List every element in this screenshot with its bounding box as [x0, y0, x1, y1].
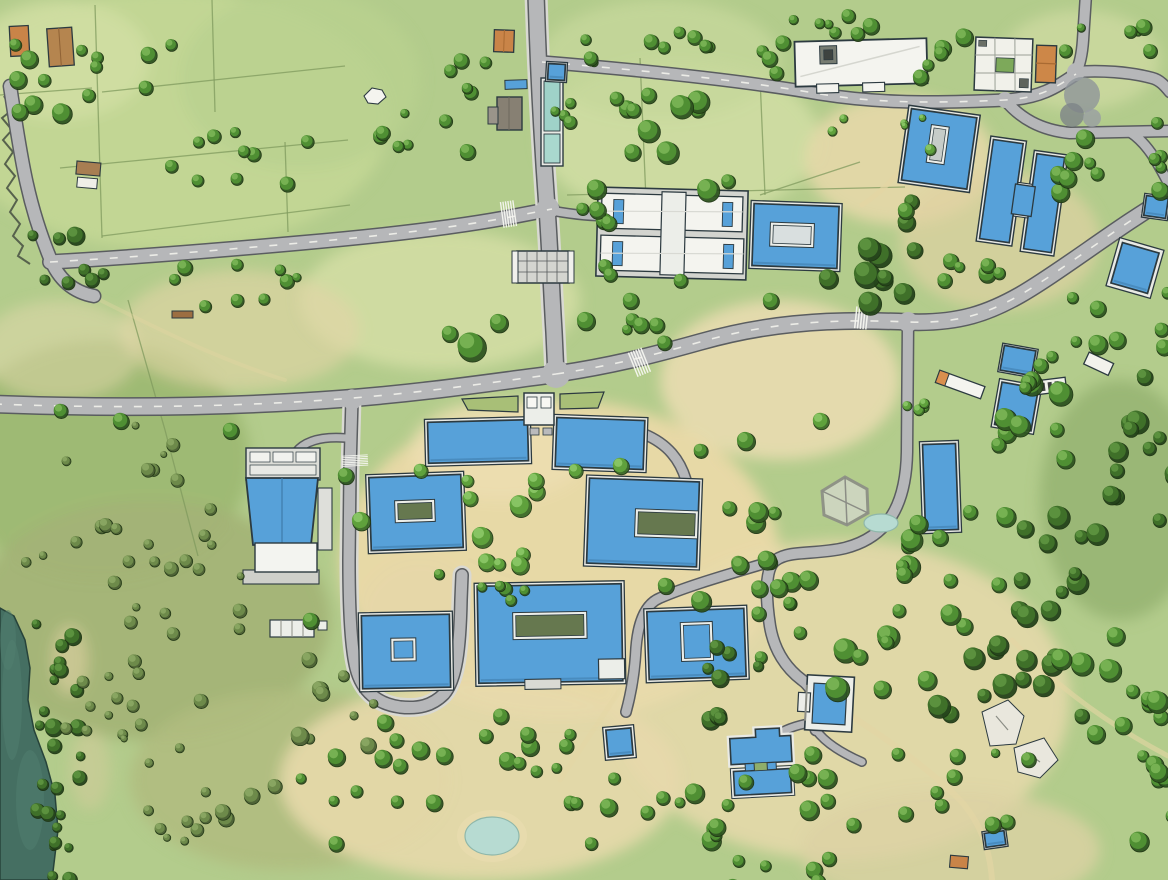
tree — [111, 692, 123, 704]
tree — [199, 529, 211, 541]
tree — [1091, 167, 1105, 181]
tree — [783, 597, 796, 611]
tree — [495, 581, 506, 592]
tree — [714, 711, 728, 725]
building-orange-house — [494, 30, 515, 53]
tree — [892, 748, 905, 762]
tree — [694, 444, 709, 459]
tree — [658, 41, 671, 54]
tree — [1077, 23, 1086, 32]
tree — [296, 773, 307, 784]
tree — [234, 623, 245, 634]
building-twin-depot — [596, 187, 748, 280]
tree — [54, 404, 69, 419]
tree — [1069, 567, 1082, 580]
building-main-hall — [583, 475, 702, 570]
tree — [201, 787, 211, 797]
tree — [585, 837, 598, 850]
tree — [674, 274, 689, 289]
tree — [165, 39, 177, 51]
tree — [81, 725, 92, 736]
tree — [1059, 44, 1073, 58]
tree — [143, 805, 153, 815]
building-road-kiosk — [545, 61, 567, 82]
tree — [1019, 382, 1032, 395]
tree — [132, 422, 139, 429]
tree — [493, 558, 506, 571]
terrain-patch — [120, 270, 360, 390]
tree — [1153, 431, 1166, 445]
tree — [155, 823, 167, 835]
tree — [1151, 117, 1163, 130]
building-lecture-hall-west — [366, 471, 467, 553]
tree — [143, 539, 153, 549]
tree — [901, 122, 908, 129]
tree — [1050, 423, 1065, 438]
tree — [56, 810, 66, 820]
tree — [434, 569, 445, 580]
tree — [231, 294, 244, 308]
tree — [292, 273, 301, 282]
tree — [52, 823, 62, 833]
tree — [231, 259, 243, 272]
tree — [702, 663, 713, 675]
tree — [160, 608, 171, 619]
tree — [163, 834, 170, 842]
tree — [477, 582, 487, 592]
tree — [192, 175, 204, 188]
building-south-edge-shed-orange — [950, 855, 969, 869]
tree — [76, 45, 87, 57]
tree — [165, 160, 178, 174]
tree — [919, 114, 926, 121]
tree — [104, 672, 113, 681]
tree — [564, 116, 578, 130]
tree — [414, 464, 429, 479]
tree — [622, 325, 632, 335]
tree — [111, 523, 122, 535]
road-junction — [537, 197, 559, 219]
building-bench — [172, 311, 193, 318]
tree — [513, 757, 526, 771]
tree — [141, 463, 155, 477]
tree — [842, 9, 856, 24]
tree — [60, 722, 72, 734]
tree — [179, 554, 192, 567]
building-gate-hall-west — [424, 417, 531, 467]
road-junction — [343, 392, 361, 410]
terrain-patch — [70, 730, 110, 810]
tree — [164, 562, 179, 577]
tree — [351, 785, 364, 798]
tree — [824, 20, 833, 29]
tree — [50, 675, 59, 684]
tree — [51, 782, 64, 795]
tree — [935, 799, 949, 814]
tree — [520, 585, 530, 595]
tree — [82, 89, 96, 103]
tree — [391, 795, 404, 808]
tree — [207, 540, 216, 549]
tree — [127, 700, 140, 713]
tree — [90, 61, 103, 74]
tree — [132, 603, 140, 611]
tree — [1075, 530, 1089, 544]
tree — [552, 763, 562, 774]
tree — [149, 556, 160, 567]
tree — [1149, 763, 1168, 783]
river-streak — [0, 610, 16, 670]
tree — [40, 275, 51, 286]
tree — [1155, 323, 1168, 338]
tree — [565, 98, 576, 109]
tree — [175, 743, 185, 753]
tree — [145, 758, 154, 767]
tree — [400, 109, 409, 118]
tree — [194, 694, 209, 709]
tree — [121, 735, 128, 742]
tree — [70, 536, 82, 548]
tree — [769, 66, 784, 81]
tree — [569, 464, 584, 479]
tree — [839, 114, 848, 123]
tree — [105, 711, 113, 719]
tree — [193, 137, 205, 149]
tree — [39, 551, 47, 559]
building-library-block — [474, 581, 626, 691]
tree — [480, 57, 492, 69]
tree — [49, 836, 62, 849]
tree — [505, 595, 517, 607]
tree — [479, 729, 494, 744]
tree — [108, 576, 122, 590]
tree — [1084, 158, 1096, 170]
tree — [161, 451, 167, 457]
tree — [1124, 25, 1137, 38]
building-south-shed — [603, 725, 637, 761]
tree — [393, 141, 405, 153]
tree — [925, 144, 936, 156]
tree — [604, 268, 618, 282]
building-canal-structure — [541, 78, 563, 166]
building-north-flank-hall — [749, 200, 842, 271]
building-cross-block — [728, 727, 794, 798]
tree — [62, 456, 71, 465]
tree — [171, 473, 185, 487]
tree — [954, 262, 965, 273]
tree — [760, 860, 771, 872]
pond — [864, 514, 898, 532]
tree — [674, 27, 686, 39]
tree — [656, 791, 670, 805]
tree — [851, 27, 865, 42]
tree — [640, 806, 654, 821]
tree — [1149, 153, 1161, 166]
tree — [199, 300, 212, 313]
building-ne-courtyard-block — [898, 105, 980, 192]
tree — [166, 438, 180, 452]
tree — [1143, 44, 1157, 59]
tree — [722, 799, 735, 812]
tree — [169, 274, 180, 286]
tree — [62, 276, 75, 290]
tree — [922, 59, 934, 71]
tree — [128, 654, 142, 668]
tree — [64, 843, 73, 852]
tree — [238, 145, 250, 157]
tree — [1056, 586, 1069, 599]
tree — [55, 639, 69, 653]
map-viewport[interactable] — [0, 0, 1168, 880]
tree — [815, 18, 825, 29]
tree — [570, 797, 583, 810]
tree — [369, 699, 378, 708]
tree — [258, 293, 270, 305]
tree — [85, 701, 95, 711]
tree — [231, 173, 244, 186]
tree — [930, 786, 943, 800]
tree — [123, 555, 135, 567]
tree — [28, 230, 39, 241]
tree — [584, 51, 598, 66]
tree — [1046, 351, 1058, 363]
tree — [275, 265, 286, 276]
tree — [76, 752, 85, 762]
tree — [135, 718, 148, 731]
tree — [444, 64, 457, 77]
tree — [207, 129, 221, 144]
tree — [1153, 513, 1167, 527]
tree — [35, 721, 45, 731]
tree — [828, 126, 838, 136]
tree — [230, 127, 241, 138]
tree — [77, 676, 89, 689]
tree — [301, 135, 314, 148]
tree — [329, 796, 340, 807]
tree — [181, 815, 193, 827]
pond — [465, 817, 519, 855]
tree — [920, 398, 930, 408]
tree — [38, 74, 51, 87]
tree — [200, 812, 212, 824]
tree — [32, 619, 41, 629]
tree — [39, 706, 49, 717]
tree — [977, 689, 991, 703]
tree — [794, 626, 807, 639]
tree — [191, 823, 204, 837]
building-blue-sign — [505, 80, 527, 90]
tree — [1126, 685, 1140, 699]
tree — [37, 779, 49, 791]
river-streak — [16, 750, 44, 850]
tree — [133, 667, 145, 679]
tree — [461, 475, 474, 488]
tree — [338, 670, 349, 682]
tree — [21, 557, 31, 567]
tree — [576, 203, 589, 216]
tree — [753, 661, 764, 672]
building-gate-hall-east — [552, 414, 648, 472]
tree — [768, 507, 781, 520]
tree — [675, 797, 686, 808]
tree — [350, 711, 359, 720]
tree — [1067, 292, 1079, 304]
tree — [233, 604, 247, 619]
tree — [993, 267, 1005, 280]
tree — [880, 636, 894, 650]
tree — [721, 174, 735, 189]
campus-aerial-map[interactable] — [0, 0, 1168, 880]
tree — [944, 574, 958, 589]
tree — [991, 749, 1000, 758]
tree — [733, 855, 745, 868]
tree — [903, 401, 913, 411]
tree — [124, 616, 137, 630]
tree — [205, 503, 217, 515]
tree — [237, 572, 244, 579]
tree — [1071, 336, 1082, 347]
tree — [531, 765, 543, 777]
tree — [1143, 442, 1157, 456]
tree — [608, 772, 621, 785]
tree — [934, 47, 948, 62]
tree — [53, 232, 66, 245]
tree — [439, 114, 453, 128]
building-workshop-west — [358, 611, 453, 692]
tree — [580, 34, 591, 45]
tree — [462, 83, 473, 94]
tree — [193, 563, 205, 575]
tree — [699, 40, 712, 53]
tree — [892, 604, 906, 618]
tree — [9, 39, 22, 52]
tree — [167, 627, 180, 640]
tree — [550, 107, 560, 117]
building-farm-court — [47, 27, 75, 67]
building-labs-east — [644, 605, 750, 683]
tree — [789, 15, 799, 25]
tree — [610, 92, 624, 107]
tree — [180, 837, 188, 846]
building-road-gate-grid — [512, 251, 574, 283]
